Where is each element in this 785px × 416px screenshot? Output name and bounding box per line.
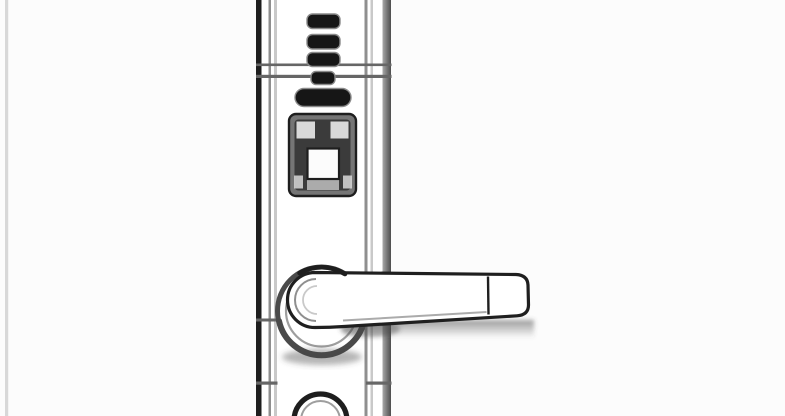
rosette-shadow	[282, 349, 362, 365]
fingerprint-corner-left	[294, 176, 303, 189]
page-border-stripe	[5, 0, 8, 416]
speaker-grille	[307, 14, 340, 85]
fingerprint-corner-right	[343, 176, 352, 189]
plate-left-edge	[256, 0, 262, 416]
speaker-slot-4	[311, 72, 335, 85]
fingerprint-highlight-right	[331, 122, 349, 139]
lock-line-drawing	[0, 0, 785, 416]
plate-right-bevel-line	[365, 0, 368, 416]
plate-seam-lower-tick-left	[256, 382, 278, 385]
fingerprint-sensor-window	[308, 149, 340, 180]
lever-handle	[288, 267, 529, 327]
indicator-bar	[295, 89, 351, 107]
fingerprint-bottom-bar	[307, 180, 339, 191]
plate-right-bevel-line-2	[371, 0, 374, 416]
plate-right-shaded-edge	[383, 0, 392, 416]
lever-outline	[288, 273, 529, 328]
speaker-slot-1	[307, 14, 340, 29]
fingerprint-highlight-left	[297, 122, 316, 139]
plate-left-bevel-line-2	[274, 0, 277, 416]
lever-end-cap-line	[488, 277, 489, 315]
plate-left-bevel-line	[269, 0, 272, 416]
plate-seam-lower-tick-right	[366, 382, 392, 385]
speaker-slot-2	[307, 35, 340, 50]
fingerprint-scanner	[289, 114, 356, 196]
speaker-slot-3	[307, 53, 340, 67]
screenshot	[0, 0, 785, 416]
